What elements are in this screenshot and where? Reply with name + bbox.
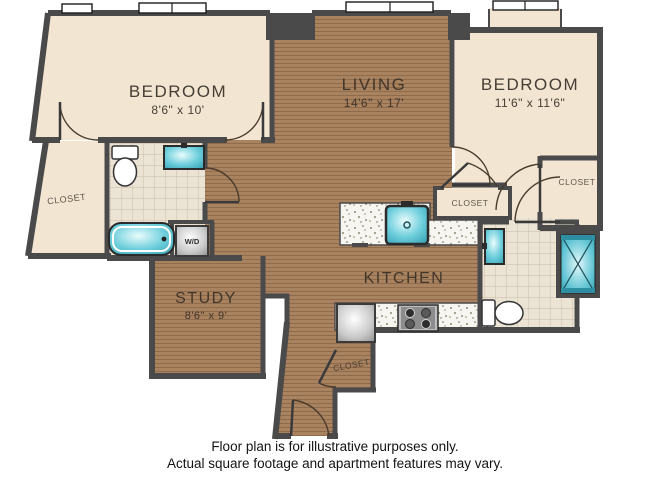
shower — [556, 230, 600, 298]
floor-plan-page: W/D — [0, 0, 669, 482]
kitchen-sink — [386, 201, 428, 244]
wall-block-left-of-living — [266, 13, 315, 40]
stove — [398, 305, 438, 331]
washer-dryer: W/D — [176, 226, 208, 256]
room-label-study: STUDY — [175, 290, 237, 307]
disclaimer-line-1: Floor plan is for illustrative purposes … — [211, 439, 458, 454]
room-label-bedroom-left: BEDROOM — [129, 82, 227, 101]
room-label-living: LIVING — [342, 75, 407, 94]
floor-plan-canvas: W/D — [0, 0, 669, 482]
room-dims-study: 8'6" x 9' — [185, 310, 228, 322]
window-bedroom-left-1 — [62, 4, 92, 13]
sink-bath-left — [164, 143, 204, 169]
wall-block-right-of-living — [448, 13, 470, 40]
room-dims-bedroom-right: 11'6" x 11'6" — [495, 96, 566, 110]
room-dims-living: 14'6" x 17' — [344, 96, 404, 110]
closet-label-right: CLOSET — [558, 177, 595, 187]
closet-right-floor — [540, 158, 600, 228]
room-bedroom-left-floor — [32, 13, 270, 140]
toilet-bath-right — [482, 300, 523, 326]
toilet-bath-left — [112, 146, 138, 186]
bathtub — [109, 223, 174, 255]
washer-dryer-label: W/D — [185, 237, 200, 246]
disclaimer-line-2: Actual square footage and apartment feat… — [167, 456, 503, 471]
refrigerator — [337, 304, 375, 342]
closet-label-kitchen: CLOSET — [451, 198, 488, 208]
room-label-bedroom-right: BEDROOM — [481, 75, 579, 94]
sink-bath-right — [482, 229, 504, 264]
island-cabinet-handle — [352, 243, 368, 247]
room-label-kitchen: KITCHEN — [364, 270, 445, 287]
room-dims-bedroom-left: 8'6" x 10' — [151, 103, 204, 117]
